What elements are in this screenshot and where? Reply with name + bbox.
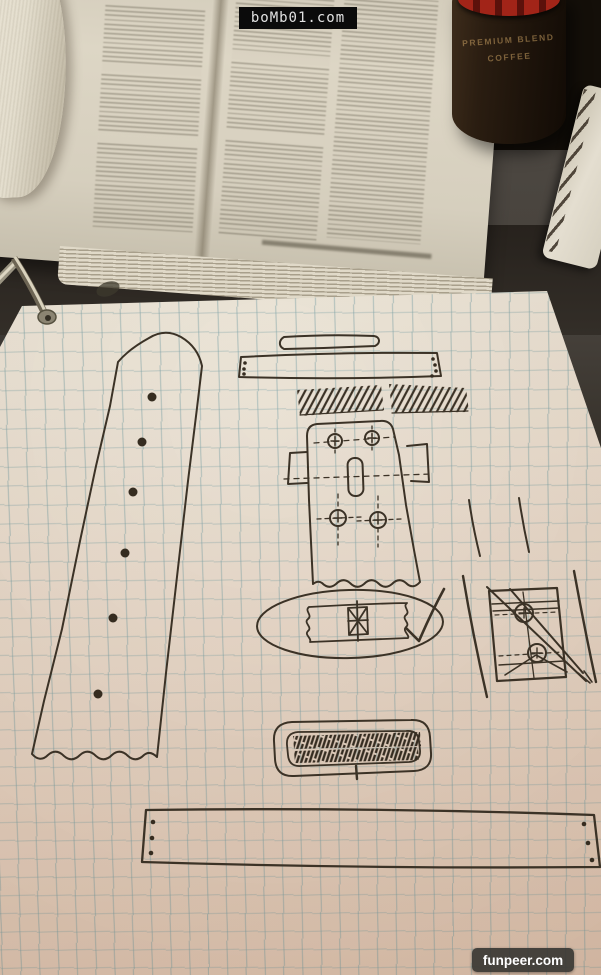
crossed-out-detail-sketch <box>463 498 596 697</box>
bottom-bar-sketch <box>142 809 600 867</box>
cross-out-lines <box>487 587 586 681</box>
crossed-box-symbol <box>348 601 368 641</box>
watermark-top: boMb01.com <box>239 7 357 29</box>
long-bar-sketch <box>239 353 441 378</box>
plate-sketch <box>284 421 432 587</box>
plate-left-tab <box>288 452 307 484</box>
hatched-strips-sketch <box>297 384 469 416</box>
watermark-bottom-label: funpeer.com <box>483 953 563 968</box>
plate-right-tab <box>407 444 429 482</box>
watermark-bottom: funpeer.com <box>472 948 574 972</box>
binder-ring <box>0 257 122 324</box>
oval-detail-sketch <box>256 588 444 661</box>
bracket-strip-sketch <box>280 335 379 349</box>
hand-drawn-sketch <box>0 0 601 975</box>
capsule-sketch <box>274 720 431 779</box>
photo-scene: PREMIUM BLEND COFFEE <box>0 0 601 975</box>
watermark-top-label: boMb01.com <box>251 10 345 26</box>
strap-sketch <box>32 333 202 760</box>
